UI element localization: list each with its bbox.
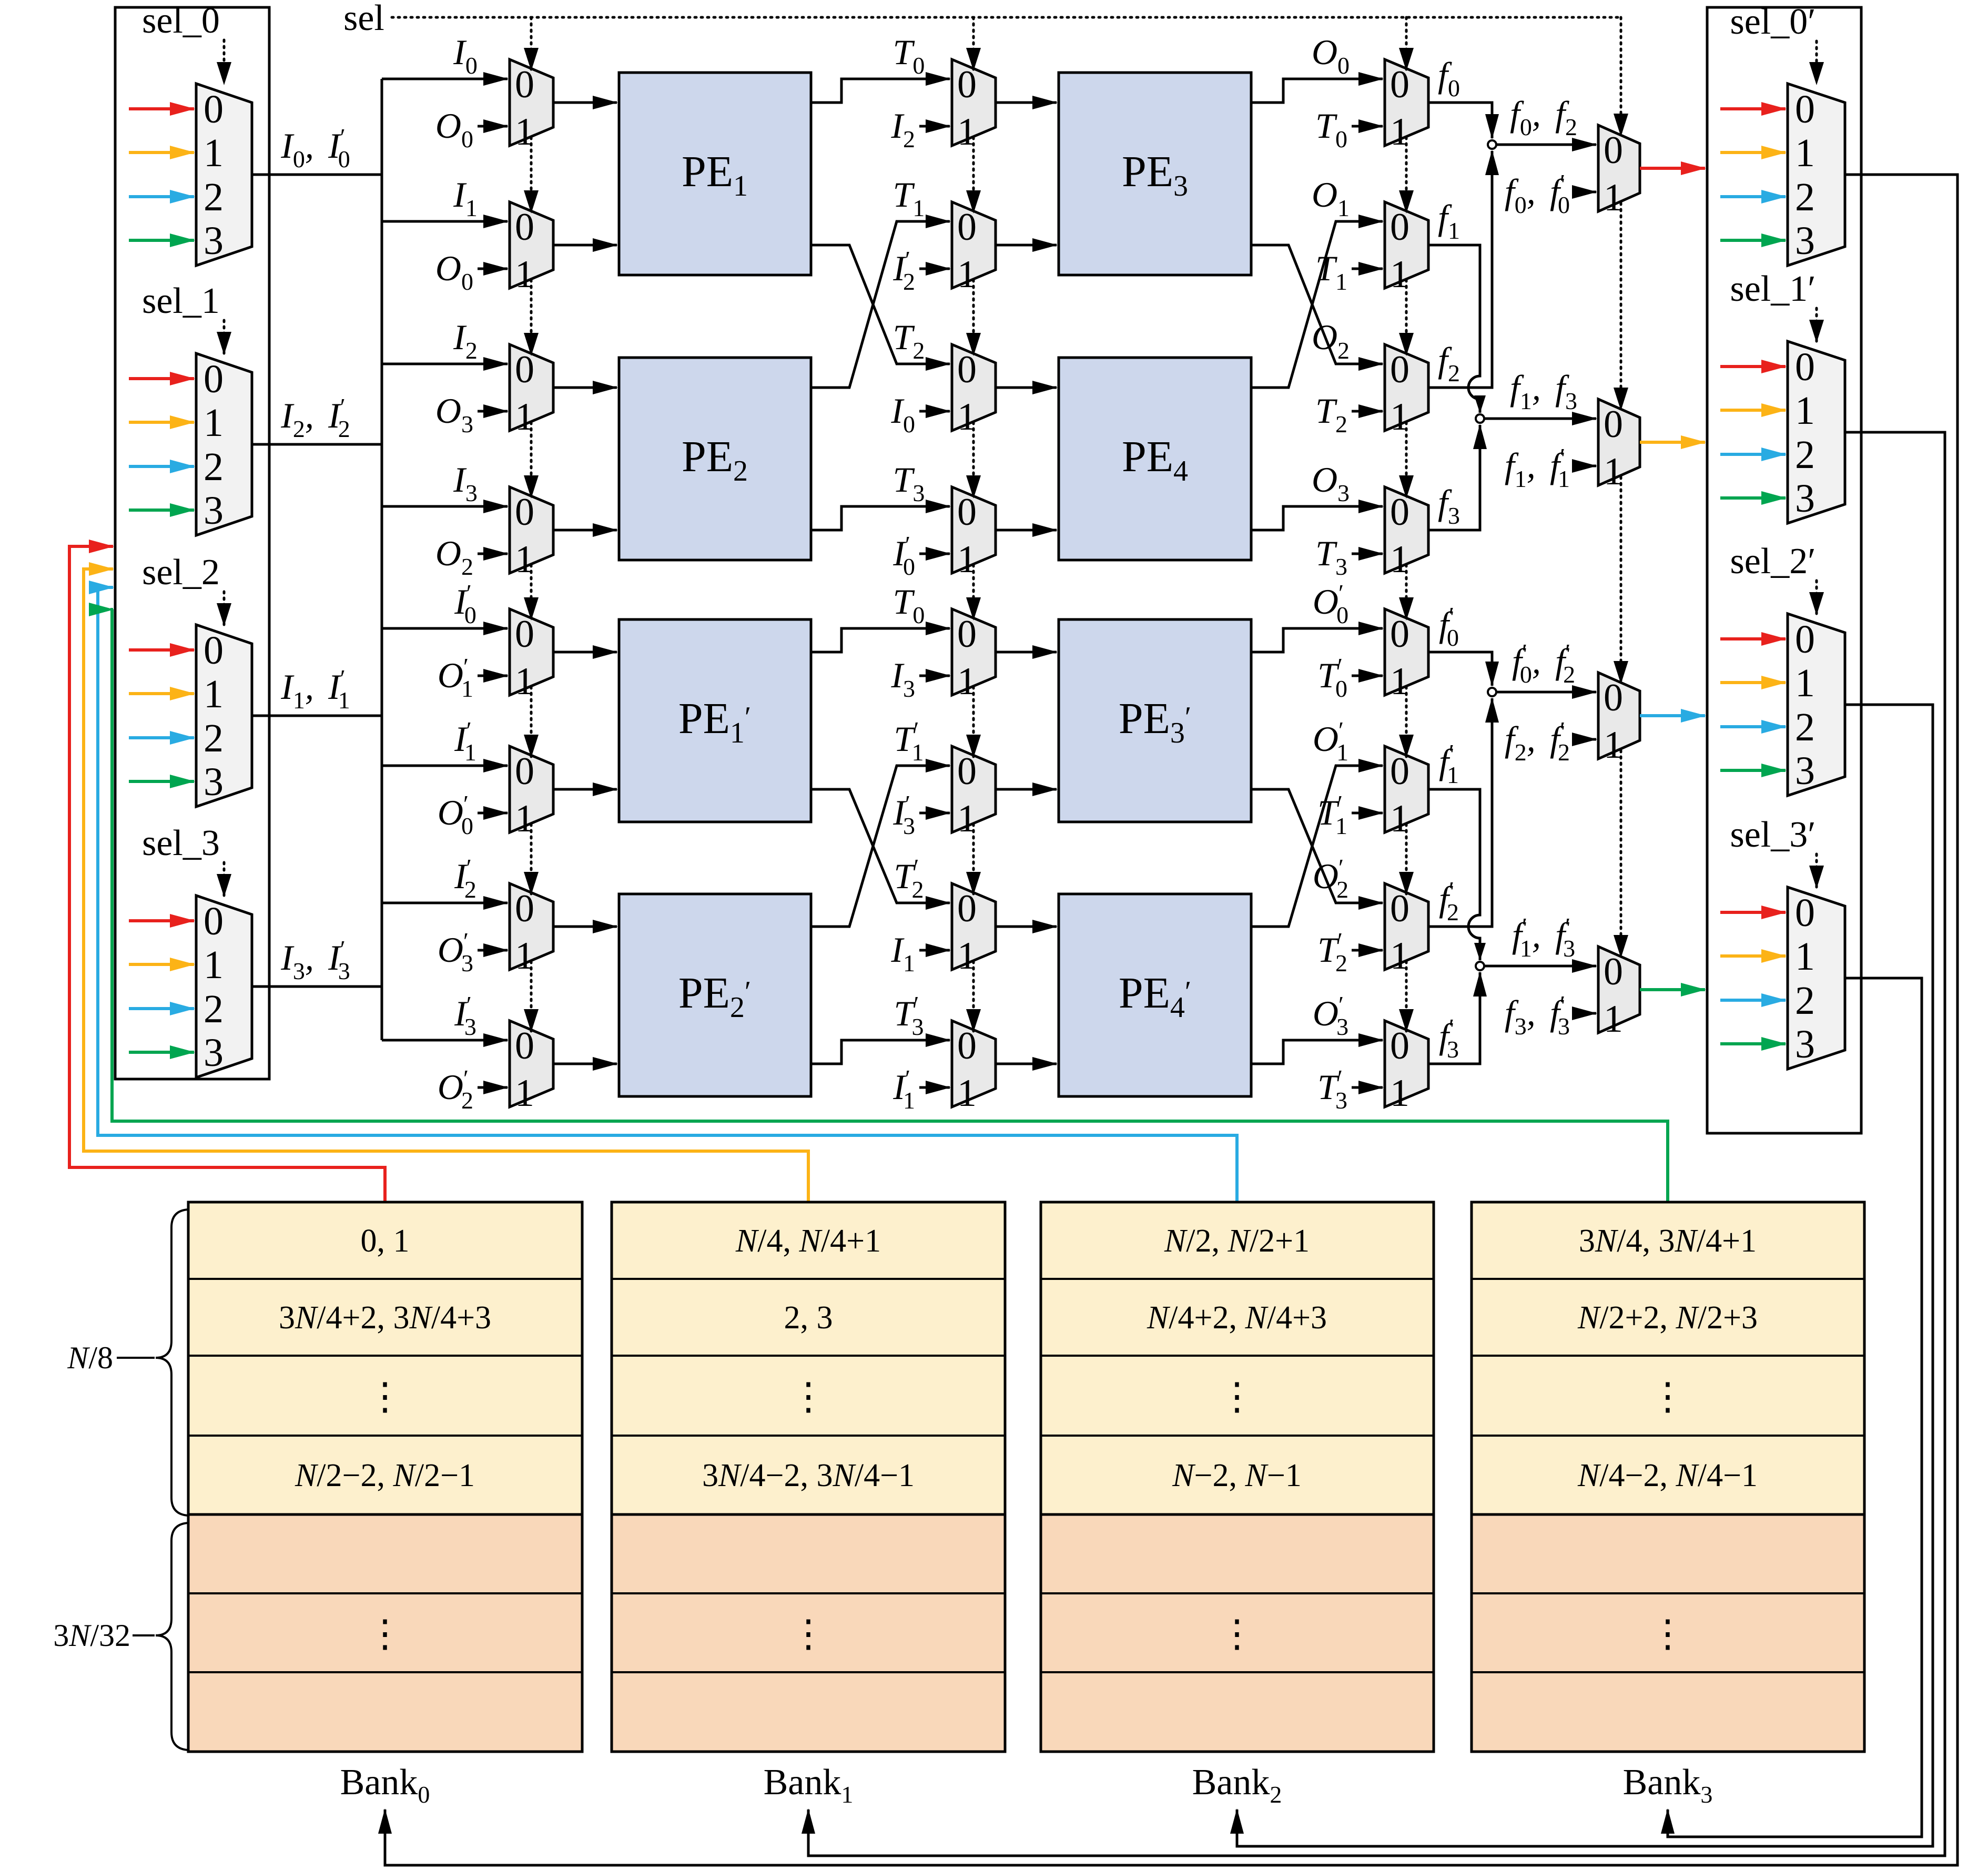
svg-text:I2, I′2: I2, I′2 bbox=[280, 393, 350, 442]
svg-text:1: 1 bbox=[1390, 395, 1409, 439]
svg-text:1: 1 bbox=[1795, 934, 1815, 979]
svg-text:⋮: ⋮ bbox=[789, 1376, 827, 1418]
svg-text:Bank2: Bank2 bbox=[1192, 1762, 1282, 1808]
svg-text:f1, f′1: f1, f′1 bbox=[1505, 443, 1570, 492]
svg-text:1: 1 bbox=[957, 253, 977, 296]
svg-text:3: 3 bbox=[204, 760, 224, 804]
svg-text:sel_0′: sel_0′ bbox=[1730, 2, 1815, 42]
svg-text:0: 0 bbox=[1795, 891, 1815, 935]
svg-text:1: 1 bbox=[204, 131, 224, 175]
svg-text:O′3: O′3 bbox=[438, 928, 473, 977]
svg-text:0: 0 bbox=[515, 348, 534, 391]
svg-text:⋮: ⋮ bbox=[1649, 1613, 1687, 1655]
svg-text:1: 1 bbox=[957, 660, 977, 703]
svg-text:1: 1 bbox=[1604, 724, 1623, 767]
svg-text:sel_3′: sel_3′ bbox=[1730, 815, 1815, 855]
svg-text:1: 1 bbox=[1795, 389, 1815, 433]
svg-text:N−2, N−1: N−2, N−1 bbox=[1172, 1458, 1302, 1493]
svg-text:f′1, f′3: f′1, f′3 bbox=[1512, 913, 1575, 962]
svg-text:sel: sel bbox=[343, 0, 384, 38]
svg-text:1: 1 bbox=[1795, 131, 1815, 175]
svg-text:1: 1 bbox=[1604, 450, 1623, 493]
svg-text:2: 2 bbox=[204, 175, 224, 219]
svg-text:O′1: O′1 bbox=[438, 653, 473, 702]
svg-text:1: 1 bbox=[515, 538, 534, 581]
svg-text:0: 0 bbox=[1604, 676, 1623, 719]
svg-text:1: 1 bbox=[1390, 797, 1409, 840]
svg-text:1: 1 bbox=[1604, 998, 1623, 1041]
svg-text:1: 1 bbox=[204, 401, 224, 445]
svg-text:sel_3: sel_3 bbox=[142, 823, 220, 863]
svg-text:3: 3 bbox=[204, 489, 224, 533]
svg-text:0: 0 bbox=[957, 348, 977, 391]
svg-text:1: 1 bbox=[957, 934, 977, 978]
svg-text:N/4, N/4+1: N/4, N/4+1 bbox=[735, 1223, 881, 1259]
svg-text:3: 3 bbox=[204, 1031, 224, 1075]
svg-text:sel_2′: sel_2′ bbox=[1730, 541, 1815, 582]
svg-text:I0, I′0: I0, I′0 bbox=[280, 124, 350, 172]
svg-text:⋮: ⋮ bbox=[1218, 1613, 1256, 1655]
svg-text:sel_2: sel_2 bbox=[142, 552, 220, 593]
svg-text:O′2: O′2 bbox=[438, 1065, 473, 1114]
svg-text:sel_0: sel_0 bbox=[142, 1, 220, 41]
svg-text:1: 1 bbox=[515, 395, 534, 439]
svg-text:0, 1: 0, 1 bbox=[361, 1223, 410, 1259]
svg-text:N/4+2, N/4+3: N/4+2, N/4+3 bbox=[1147, 1300, 1327, 1336]
svg-text:1: 1 bbox=[1390, 660, 1409, 703]
svg-text:1: 1 bbox=[204, 672, 224, 716]
svg-text:⋮: ⋮ bbox=[366, 1613, 404, 1655]
svg-text:3: 3 bbox=[1795, 219, 1815, 263]
svg-text:3N/4−2, 3N/4−1: 3N/4−2, 3N/4−1 bbox=[702, 1458, 915, 1493]
svg-text:f2, f′2: f2, f′2 bbox=[1505, 717, 1570, 766]
svg-text:O′0: O′0 bbox=[1313, 579, 1348, 628]
svg-text:0: 0 bbox=[1795, 345, 1815, 389]
svg-text:1: 1 bbox=[515, 660, 534, 703]
svg-text:1: 1 bbox=[1390, 538, 1409, 581]
svg-text:0: 0 bbox=[1604, 129, 1623, 172]
svg-text:1: 1 bbox=[1390, 253, 1409, 296]
svg-text:1: 1 bbox=[957, 395, 977, 439]
svg-text:O′2: O′2 bbox=[1313, 854, 1348, 903]
svg-text:0: 0 bbox=[1390, 206, 1409, 249]
svg-text:2: 2 bbox=[1795, 433, 1815, 477]
svg-text:2: 2 bbox=[1795, 705, 1815, 749]
svg-text:2: 2 bbox=[204, 445, 224, 489]
svg-text:0: 0 bbox=[957, 613, 977, 656]
svg-text:⋮: ⋮ bbox=[366, 1376, 404, 1418]
svg-text:1: 1 bbox=[1390, 1072, 1409, 1115]
svg-text:I3, I′3: I3, I′3 bbox=[280, 935, 350, 984]
svg-text:0: 0 bbox=[1390, 613, 1409, 656]
svg-text:1: 1 bbox=[515, 1072, 534, 1115]
svg-text:2, 3: 2, 3 bbox=[784, 1300, 833, 1336]
svg-text:1: 1 bbox=[1390, 110, 1409, 154]
svg-text:1: 1 bbox=[1795, 661, 1815, 705]
svg-text:0: 0 bbox=[515, 613, 534, 656]
svg-text:1: 1 bbox=[515, 110, 534, 154]
svg-text:Bank3: Bank3 bbox=[1623, 1762, 1713, 1808]
svg-text:0: 0 bbox=[204, 628, 224, 673]
svg-text:3N/4, 3N/4+1: 3N/4, 3N/4+1 bbox=[1579, 1223, 1757, 1259]
svg-text:O′0: O′0 bbox=[438, 790, 473, 839]
svg-text:0: 0 bbox=[204, 899, 224, 943]
svg-text:N/8: N/8 bbox=[67, 1340, 113, 1375]
svg-text:3N/32: 3N/32 bbox=[53, 1618, 130, 1653]
svg-text:0: 0 bbox=[957, 206, 977, 249]
svg-text:f3, f′3: f3, f′3 bbox=[1505, 991, 1570, 1040]
svg-text:1: 1 bbox=[515, 797, 534, 840]
svg-text:0: 0 bbox=[204, 357, 224, 401]
svg-text:N/4−2, N/4−1: N/4−2, N/4−1 bbox=[1577, 1458, 1758, 1493]
svg-text:0: 0 bbox=[515, 206, 534, 249]
svg-text:1: 1 bbox=[204, 943, 224, 987]
svg-text:f′0, f′2: f′0, f′2 bbox=[1512, 639, 1575, 688]
svg-text:3: 3 bbox=[1795, 749, 1815, 793]
svg-text:I1, I′1: I1, I′1 bbox=[280, 665, 350, 714]
svg-text:3: 3 bbox=[1795, 1022, 1815, 1066]
svg-text:3: 3 bbox=[204, 219, 224, 263]
svg-text:1: 1 bbox=[515, 934, 534, 978]
svg-text:1: 1 bbox=[957, 538, 977, 581]
svg-text:1: 1 bbox=[1390, 934, 1409, 978]
svg-text:0: 0 bbox=[1604, 950, 1623, 993]
svg-text:Bank0: Bank0 bbox=[340, 1762, 430, 1808]
svg-text:0: 0 bbox=[957, 491, 977, 534]
svg-text:0: 0 bbox=[1390, 491, 1409, 534]
svg-text:f0, f′0: f0, f′0 bbox=[1505, 169, 1570, 218]
svg-text:1: 1 bbox=[1604, 176, 1623, 219]
svg-text:N/2+2, N/2+3: N/2+2, N/2+3 bbox=[1577, 1300, 1758, 1336]
svg-text:N/2−2, N/2−1: N/2−2, N/2−1 bbox=[295, 1458, 475, 1493]
svg-text:0: 0 bbox=[1604, 403, 1623, 446]
svg-text:0: 0 bbox=[1795, 87, 1815, 131]
svg-text:⋮: ⋮ bbox=[1218, 1376, 1256, 1418]
svg-text:2: 2 bbox=[1795, 175, 1815, 219]
svg-text:O′1: O′1 bbox=[1313, 717, 1348, 766]
svg-text:2: 2 bbox=[204, 716, 224, 760]
svg-text:N/2, N/2+1: N/2, N/2+1 bbox=[1164, 1223, 1310, 1259]
svg-text:1: 1 bbox=[957, 1072, 977, 1115]
svg-text:1: 1 bbox=[957, 797, 977, 840]
svg-text:O′3: O′3 bbox=[1313, 991, 1348, 1040]
svg-text:sel_1′: sel_1′ bbox=[1730, 269, 1815, 309]
svg-text:0: 0 bbox=[1390, 348, 1409, 391]
svg-text:0: 0 bbox=[204, 87, 224, 131]
svg-text:1: 1 bbox=[515, 253, 534, 296]
svg-text:1: 1 bbox=[957, 110, 977, 154]
svg-text:0: 0 bbox=[1795, 617, 1815, 662]
svg-text:sel_1: sel_1 bbox=[142, 281, 220, 321]
svg-text:Bank1: Bank1 bbox=[764, 1762, 854, 1808]
svg-text:⋮: ⋮ bbox=[1649, 1376, 1687, 1418]
svg-text:2: 2 bbox=[204, 987, 224, 1031]
svg-text:2: 2 bbox=[1795, 979, 1815, 1023]
svg-text:3N/4+2, 3N/4+3: 3N/4+2, 3N/4+3 bbox=[279, 1300, 491, 1336]
svg-text:⋮: ⋮ bbox=[789, 1613, 827, 1655]
svg-text:0: 0 bbox=[515, 491, 534, 534]
svg-text:3: 3 bbox=[1795, 476, 1815, 521]
